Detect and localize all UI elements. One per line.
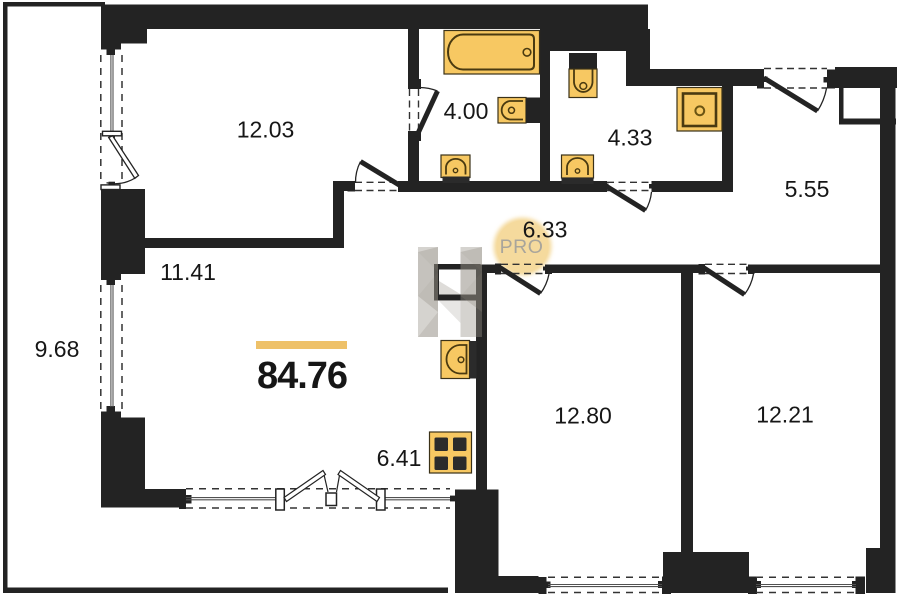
- svg-text:12.21: 12.21: [756, 402, 814, 428]
- svg-text:4.33: 4.33: [608, 125, 653, 151]
- svg-text:9.68: 9.68: [35, 336, 80, 362]
- svg-text:5.55: 5.55: [785, 176, 830, 202]
- svg-text:84.76: 84.76: [257, 355, 347, 397]
- svg-text:PRO: PRO: [500, 236, 544, 258]
- svg-text:11.41: 11.41: [160, 259, 216, 285]
- svg-text:6.41: 6.41: [377, 445, 422, 471]
- svg-text:12.03: 12.03: [237, 117, 295, 143]
- svg-text:12.80: 12.80: [554, 403, 612, 429]
- svg-text:4.00: 4.00: [444, 98, 489, 124]
